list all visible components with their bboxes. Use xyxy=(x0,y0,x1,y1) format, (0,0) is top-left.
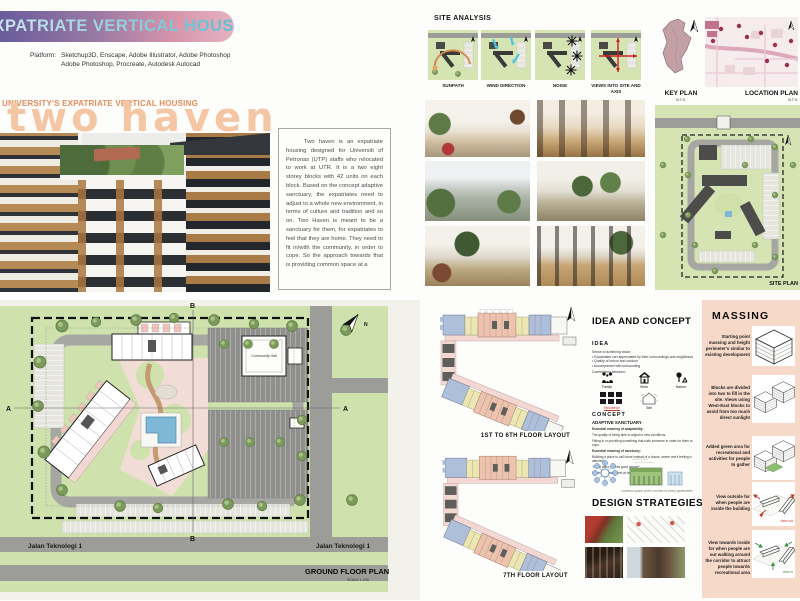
platform-line2: Adobe Photoshop, Procreate, Autodesk Aut… xyxy=(61,60,230,69)
location-plan-label: LOCATION PLAN xyxy=(688,90,798,97)
project-description: Two haven is an expatriate housing desig… xyxy=(286,138,383,270)
idea-subicons: Residence Site xyxy=(600,392,658,410)
site-label: Site xyxy=(646,406,652,410)
noise-diagram xyxy=(535,30,585,80)
massing-block-1 xyxy=(752,326,795,366)
adaptability-heading: Essential meaning of adaptability: xyxy=(592,427,694,431)
section-b-top: B xyxy=(190,303,195,310)
sanctuary-heading: Essential meaning of sanctuary: xyxy=(592,449,694,453)
massing-step-4-text: View outside for when people are inside … xyxy=(704,494,750,512)
wind-direction-diagram xyxy=(481,30,531,80)
massing-step-3-diagram xyxy=(752,436,795,480)
idea-concept-title: IDEA AND CONCEPT xyxy=(592,316,691,327)
views-diagram-drawing xyxy=(591,30,641,80)
sunpath-diagram-drawing xyxy=(428,30,478,80)
render-railing xyxy=(60,175,186,180)
massing-step-2-diagram xyxy=(752,375,795,423)
floor-layout-1-6-label: 1ST TO 6TH FLOOR LAYOUT xyxy=(468,433,583,439)
section-b-bottom: B xyxy=(190,536,195,543)
design-strategies-title: DESIGN STRATEGIES xyxy=(592,498,703,509)
views-axis-diagram xyxy=(591,30,641,80)
massing-step-3-text: Added green area for recreational and ac… xyxy=(704,444,750,468)
project-description-box: Two haven is an expatriate housing desig… xyxy=(278,128,391,290)
massing-step-5-diagram: view in xyxy=(752,530,795,578)
massing-step-4-diagram: view out xyxy=(752,482,795,526)
site-plan-drawing: SITE PLAN xyxy=(655,105,800,290)
family-icon-label: Family xyxy=(602,385,612,389)
view-out-caption: view out xyxy=(781,519,794,523)
massing-block-5: view in xyxy=(752,530,795,574)
nature-icon-label: Nature xyxy=(676,385,686,389)
massing-block-3 xyxy=(752,436,795,478)
idea-point-3: Accompanied with surrounding xyxy=(592,364,694,369)
platform-line1: Sketchup3D, Enscape, Adobe Illustrator, … xyxy=(61,51,230,60)
noise-label: NOISE xyxy=(532,83,588,89)
adaptability-text: The quality of being able to adjust to n… xyxy=(592,433,694,437)
massing-step-5-text: View towards inside for when people are … xyxy=(704,540,750,576)
key-plan-map xyxy=(658,16,702,88)
concept-name: ADAPTIVE SANCTUARY xyxy=(592,420,642,425)
site-plan-label: SITE PLAN xyxy=(769,281,798,287)
idea-icons: Family Work Nature xyxy=(594,371,694,389)
sunpath-label: SUNPATH xyxy=(425,83,481,89)
render-facade xyxy=(78,177,186,292)
platform-list: Platform: Sketchup3D, Enscape, Adobe Ill… xyxy=(30,51,231,70)
site-analysis-title: SITE ANALYSIS xyxy=(434,15,491,22)
noise-diagram-drawing xyxy=(535,30,585,80)
building-render-image xyxy=(0,133,270,292)
render-right-tower xyxy=(186,133,270,292)
residence-grid-icon xyxy=(600,392,624,405)
ground-floor-plan-label: GROUND FLOOR PLAN xyxy=(305,567,389,576)
massing-block-2 xyxy=(752,375,795,419)
floor-layout-1-6-drawing xyxy=(425,303,585,431)
page-title: EXPATRIATE VERTICAL HOUSING xyxy=(0,17,234,36)
road-label-right: Jalan Teknologi 1 xyxy=(316,543,370,550)
site-house-icon xyxy=(640,392,658,405)
render-thumb-block-exterior xyxy=(425,161,530,221)
render-thumb-roof-terrace xyxy=(537,226,645,286)
massing-title: MASSING xyxy=(712,310,769,322)
render-thumb-courtyard xyxy=(537,161,645,221)
render-thumb-garden-seating xyxy=(425,226,530,286)
views-label: VIEWS INTO SITE AND AXIS xyxy=(588,83,644,94)
site-group: Site xyxy=(640,392,658,410)
residence-label: Residence xyxy=(604,406,620,410)
render-thumb-cafe-interior xyxy=(537,100,645,157)
work-icon-label: Work xyxy=(640,385,648,389)
platform-label: Platform: xyxy=(30,51,56,60)
concept-diagram-caption: common space at the corridor of every ap… xyxy=(614,489,700,493)
location-plan-map xyxy=(705,17,798,87)
strategy-image-facade xyxy=(627,547,685,578)
nature-icon xyxy=(675,371,688,384)
section-a-right: A xyxy=(343,406,348,413)
section-a-left: A xyxy=(6,406,11,413)
title-banner: EXPATRIATE VERTICAL HOUSING xyxy=(0,11,234,42)
massing-step-1-text: Starting point massing and height perime… xyxy=(704,334,750,358)
concept-diagram xyxy=(592,458,694,488)
render-pavilion-roof xyxy=(94,147,141,161)
sunpath-diagram xyxy=(428,30,478,80)
ground-floor-plan-drawing: Community Hall A A B B xyxy=(0,300,420,600)
view-in-caption: view in xyxy=(783,570,793,574)
render-thumb-clubhouse xyxy=(425,100,530,157)
idea-icon-family: Family xyxy=(594,371,620,389)
massing-step-1-diagram xyxy=(752,326,795,366)
wind-diagram-drawing xyxy=(481,30,531,80)
concept-heading: CONCEPT xyxy=(592,412,626,418)
strategy-image-sketch xyxy=(627,516,685,543)
massing-step-2-text: Blocks are divided into two to fill in t… xyxy=(704,385,750,421)
road-label-left: Jalan Teknologi 1 xyxy=(28,543,82,550)
floor-layout-7-label: 7TH FLOOR LAYOUT xyxy=(488,573,583,579)
presentation-board: EXPATRIATE VERTICAL HOUSING Platform: Sk… xyxy=(0,0,800,601)
community-hall-label: Community Hall xyxy=(251,354,277,358)
residence-group: Residence xyxy=(600,392,624,410)
family-icon xyxy=(601,371,614,384)
north-letter: N xyxy=(364,322,368,328)
work-icon xyxy=(638,371,651,384)
strategy-image-screen-interior xyxy=(585,547,623,578)
floor-layout-7-drawing xyxy=(428,446,583,571)
project-title: two haven xyxy=(7,98,278,138)
wind-label: WIND DIRECTION xyxy=(478,83,534,89)
idea-icon-work: Work xyxy=(631,371,657,389)
idea-heading: IDEA xyxy=(592,341,609,347)
fitting-text: Fitting in or providing something that s… xyxy=(592,439,694,447)
idea-icon-nature: Nature xyxy=(668,371,694,389)
strategy-image-landscape xyxy=(585,516,623,543)
massing-block-4: view out xyxy=(752,482,795,524)
location-plan-scale: N.T.S. xyxy=(688,98,798,102)
ground-floor-plan-scale: SCALE 1:250 xyxy=(347,578,369,582)
